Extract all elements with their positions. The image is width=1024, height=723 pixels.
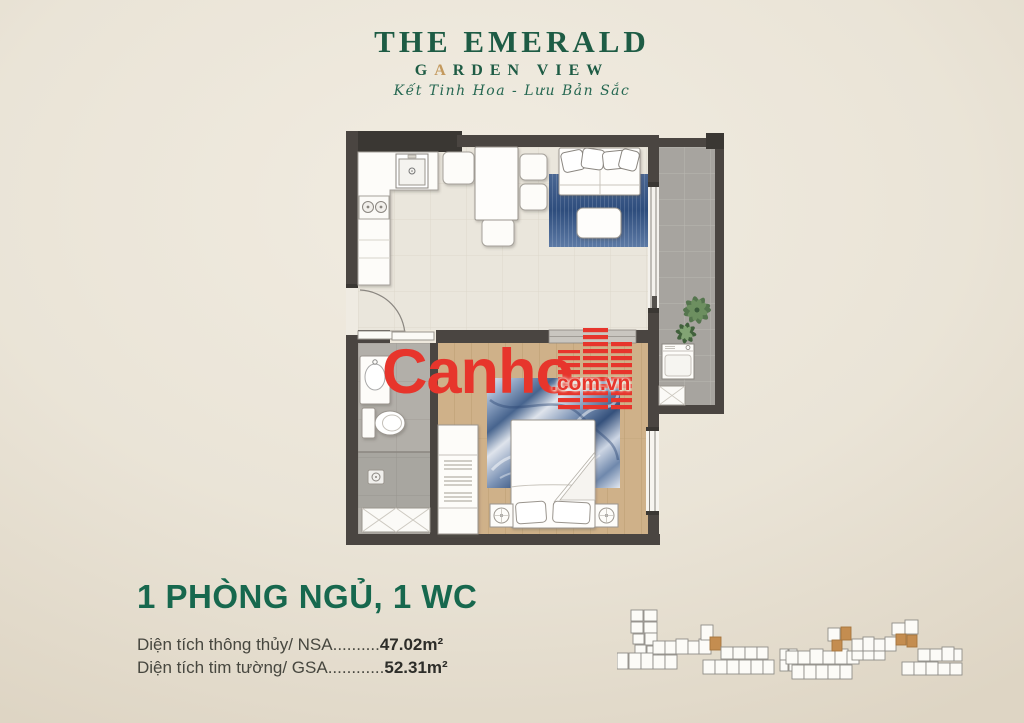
nightstand-right: [595, 504, 618, 527]
key-plan-unit: [721, 647, 733, 659]
key-plan-unit: [631, 610, 643, 621]
key-plan-unit: [852, 651, 863, 660]
key-plan-unit-highlighted: [841, 627, 851, 640]
key-plan-unit-highlighted: [907, 635, 917, 647]
area-dots-gsa: ............: [328, 658, 385, 677]
key-plan-unit: [930, 649, 942, 661]
area-label-gsa: Diện tích tim tường/ GSA: [137, 658, 328, 677]
key-plan-unit: [699, 639, 711, 654]
pillow-left: [515, 501, 546, 524]
key-plan-unit: [757, 647, 768, 659]
kitchen-sink: [396, 154, 428, 188]
dining-table: [475, 147, 518, 220]
key-plan-unit: [810, 649, 823, 664]
unit-title: 1 PHÒNG NGỦ, 1 WC: [137, 579, 477, 615]
key-plan-unit: [942, 647, 954, 661]
key-plan-unit: [715, 660, 727, 674]
key-plan-unit: [745, 647, 757, 659]
key-plan-unit: [631, 622, 643, 633]
brand-subtitle: GARDEN VIEW: [0, 62, 1024, 80]
key-plan-unit: [688, 641, 699, 654]
key-plan-unit: [852, 639, 863, 651]
key-plan-unit: [885, 637, 896, 651]
key-plan-unit: [892, 623, 905, 635]
bed: [511, 420, 595, 528]
brand-tagline: Kết Tinh Hoa - Lưu Bản Sắc: [0, 83, 1024, 99]
nightstand-left: [490, 504, 513, 527]
key-plan-unit: [816, 665, 828, 679]
area-value-nsa: 47.02m²: [380, 635, 443, 654]
area-value-gsa: 52.31m²: [384, 658, 447, 677]
area-row-nsa: Diện tích thông thủy/ NSA..........47.02…: [137, 633, 477, 656]
key-plan-unit: [828, 665, 840, 679]
key-plan-unit: [733, 647, 745, 659]
brand-subtitle-g: G: [415, 62, 434, 79]
key-plan-unit: [617, 653, 628, 669]
floor-plan: [330, 118, 750, 548]
key-plan-unit: [950, 663, 962, 675]
key-plan-unit: [828, 628, 840, 641]
area-dots-nsa: ..........: [333, 635, 380, 654]
brand-subtitle-rest: RDEN VIEW: [453, 62, 610, 79]
key-plan-unit: [798, 651, 810, 664]
key-plan-unit: [874, 651, 885, 660]
key-plan-unit: [751, 660, 763, 674]
stove: [359, 196, 389, 219]
key-plan-unit: [727, 660, 739, 674]
key-plan-unit: [840, 665, 852, 679]
key-plan-unit: [792, 665, 804, 679]
key-plan-unit-highlighted: [710, 637, 721, 650]
key-plan-unit-highlighted: [896, 634, 906, 645]
key-plan-unit: [644, 622, 657, 633]
key-plan-unit: [703, 660, 715, 674]
key-plan-unit: [633, 634, 644, 644]
key-plan-unit: [938, 663, 950, 675]
key-plan-unit: [629, 653, 641, 669]
area-row-gsa: Diện tích tim tường/ GSA............52.3…: [137, 656, 477, 679]
bathtub: [362, 508, 430, 532]
key-plan-unit: [763, 660, 774, 674]
key-plan-unit: [863, 637, 874, 651]
key-plan-unit: [653, 655, 665, 669]
key-plan-unit: [644, 610, 657, 621]
poster-page: THE EMERALD GARDEN VIEW Kết Tinh Hoa - L…: [0, 0, 1024, 723]
pillow-right: [552, 501, 590, 524]
key-plan-unit: [653, 641, 665, 654]
key-plan-unit: [665, 655, 677, 669]
key-plan-unit: [823, 651, 835, 664]
key-plan-unit: [641, 653, 653, 669]
brand-title: THE EMERALD: [0, 24, 1024, 60]
balcony-drain-box: [659, 386, 685, 405]
key-plan-unit: [786, 651, 798, 664]
key-plan-unit: [902, 662, 914, 675]
shower-head: [368, 470, 384, 484]
key-plan-unit: [804, 665, 816, 679]
site-key-plan-right: [782, 596, 964, 686]
key-plan-unit: [676, 639, 688, 654]
brand-logo: THE EMERALD GARDEN VIEW Kết Tinh Hoa - L…: [0, 24, 1024, 99]
bathroom-door: [392, 332, 434, 340]
key-plan-unit: [926, 662, 938, 675]
key-plan-unit: [665, 641, 676, 654]
wardrobe: [438, 425, 478, 534]
area-label-nsa: Diện tích thông thủy/ NSA: [137, 635, 333, 654]
key-plan-unit: [874, 639, 885, 651]
unit-area-rows: Diện tích thông thủy/ NSA..........47.02…: [137, 633, 477, 679]
balcony-sliding-door: [648, 182, 659, 313]
key-plan-unit: [914, 662, 926, 675]
key-plan-unit: [905, 620, 918, 634]
site-key-plan-left: [617, 596, 799, 686]
sofa: [559, 148, 640, 195]
gold-letter-a-icon: A: [434, 62, 453, 79]
unit-info: 1 PHÒNG NGỦ, 1 WC Diện tích thông thủy/ …: [137, 579, 477, 679]
bedroom-window: [646, 427, 659, 515]
key-plan-unit: [863, 651, 874, 660]
bathroom-sink: [360, 356, 390, 404]
coffee-table: [577, 208, 621, 238]
key-plan-unit: [739, 660, 751, 674]
washing-machine: [662, 344, 694, 379]
key-plan-unit: [918, 649, 930, 661]
key-plan-unit: [954, 649, 962, 661]
bedroom-sliding-door: [549, 330, 636, 343]
key-plan-unit-highlighted: [832, 640, 842, 651]
